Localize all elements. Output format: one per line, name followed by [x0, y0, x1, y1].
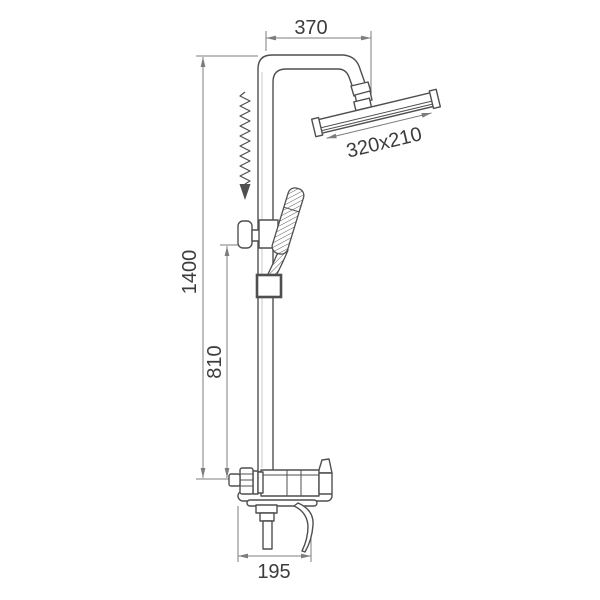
diverter-knob [318, 459, 332, 473]
mixer-assembly [229, 459, 332, 552]
dim-top-width-label: 370 [294, 17, 327, 39]
handle-knob [240, 468, 253, 494]
shower-column: 320x210 [229, 55, 448, 552]
hose-outlet-curve [294, 503, 313, 552]
dim-base-width-label: 195 [257, 561, 290, 583]
dim-head-size-label: 320x210 [344, 123, 424, 162]
technical-drawing-canvas: 370 1400 810 195 [0, 0, 600, 600]
handle-plate [258, 472, 263, 493]
mixer-body [261, 470, 319, 496]
shower-column-drawing: 370 1400 810 195 [0, 0, 600, 600]
arrowhead-down [240, 184, 251, 200]
spout-step-2 [260, 513, 274, 521]
slide-direction-arrow-icon [240, 92, 251, 200]
dim-slider-height: 810 [204, 245, 240, 478]
handle-plate [253, 471, 258, 494]
body-right-cap [319, 473, 332, 494]
handle-end [229, 474, 240, 486]
zigzag-line [240, 92, 250, 184]
spout-step-1 [256, 505, 277, 513]
holder-knob [238, 221, 252, 248]
dim-slider-height-label: 810 [204, 345, 226, 378]
spout [263, 521, 272, 549]
rain-shower-head: 320x210 [310, 83, 448, 169]
dim-total-height-label: 1400 [179, 250, 201, 295]
square-bracket [257, 275, 281, 297]
